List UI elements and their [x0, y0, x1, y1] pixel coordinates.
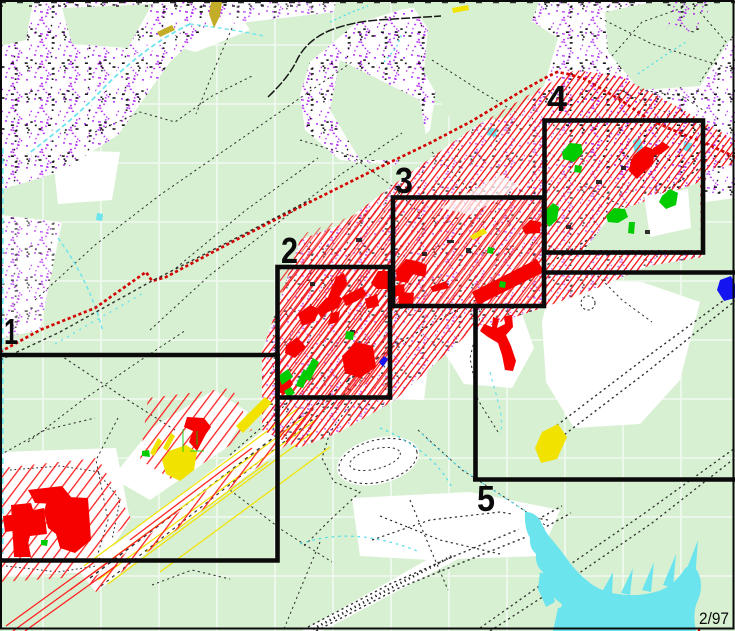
svg-text:1: 1 — [4, 311, 18, 352]
svg-text:4: 4 — [547, 78, 567, 119]
svg-text:2/97: 2/97 — [699, 610, 729, 628]
svg-text:3: 3 — [395, 160, 413, 201]
svg-text:2: 2 — [281, 230, 298, 271]
svg-text:5: 5 — [477, 478, 495, 519]
